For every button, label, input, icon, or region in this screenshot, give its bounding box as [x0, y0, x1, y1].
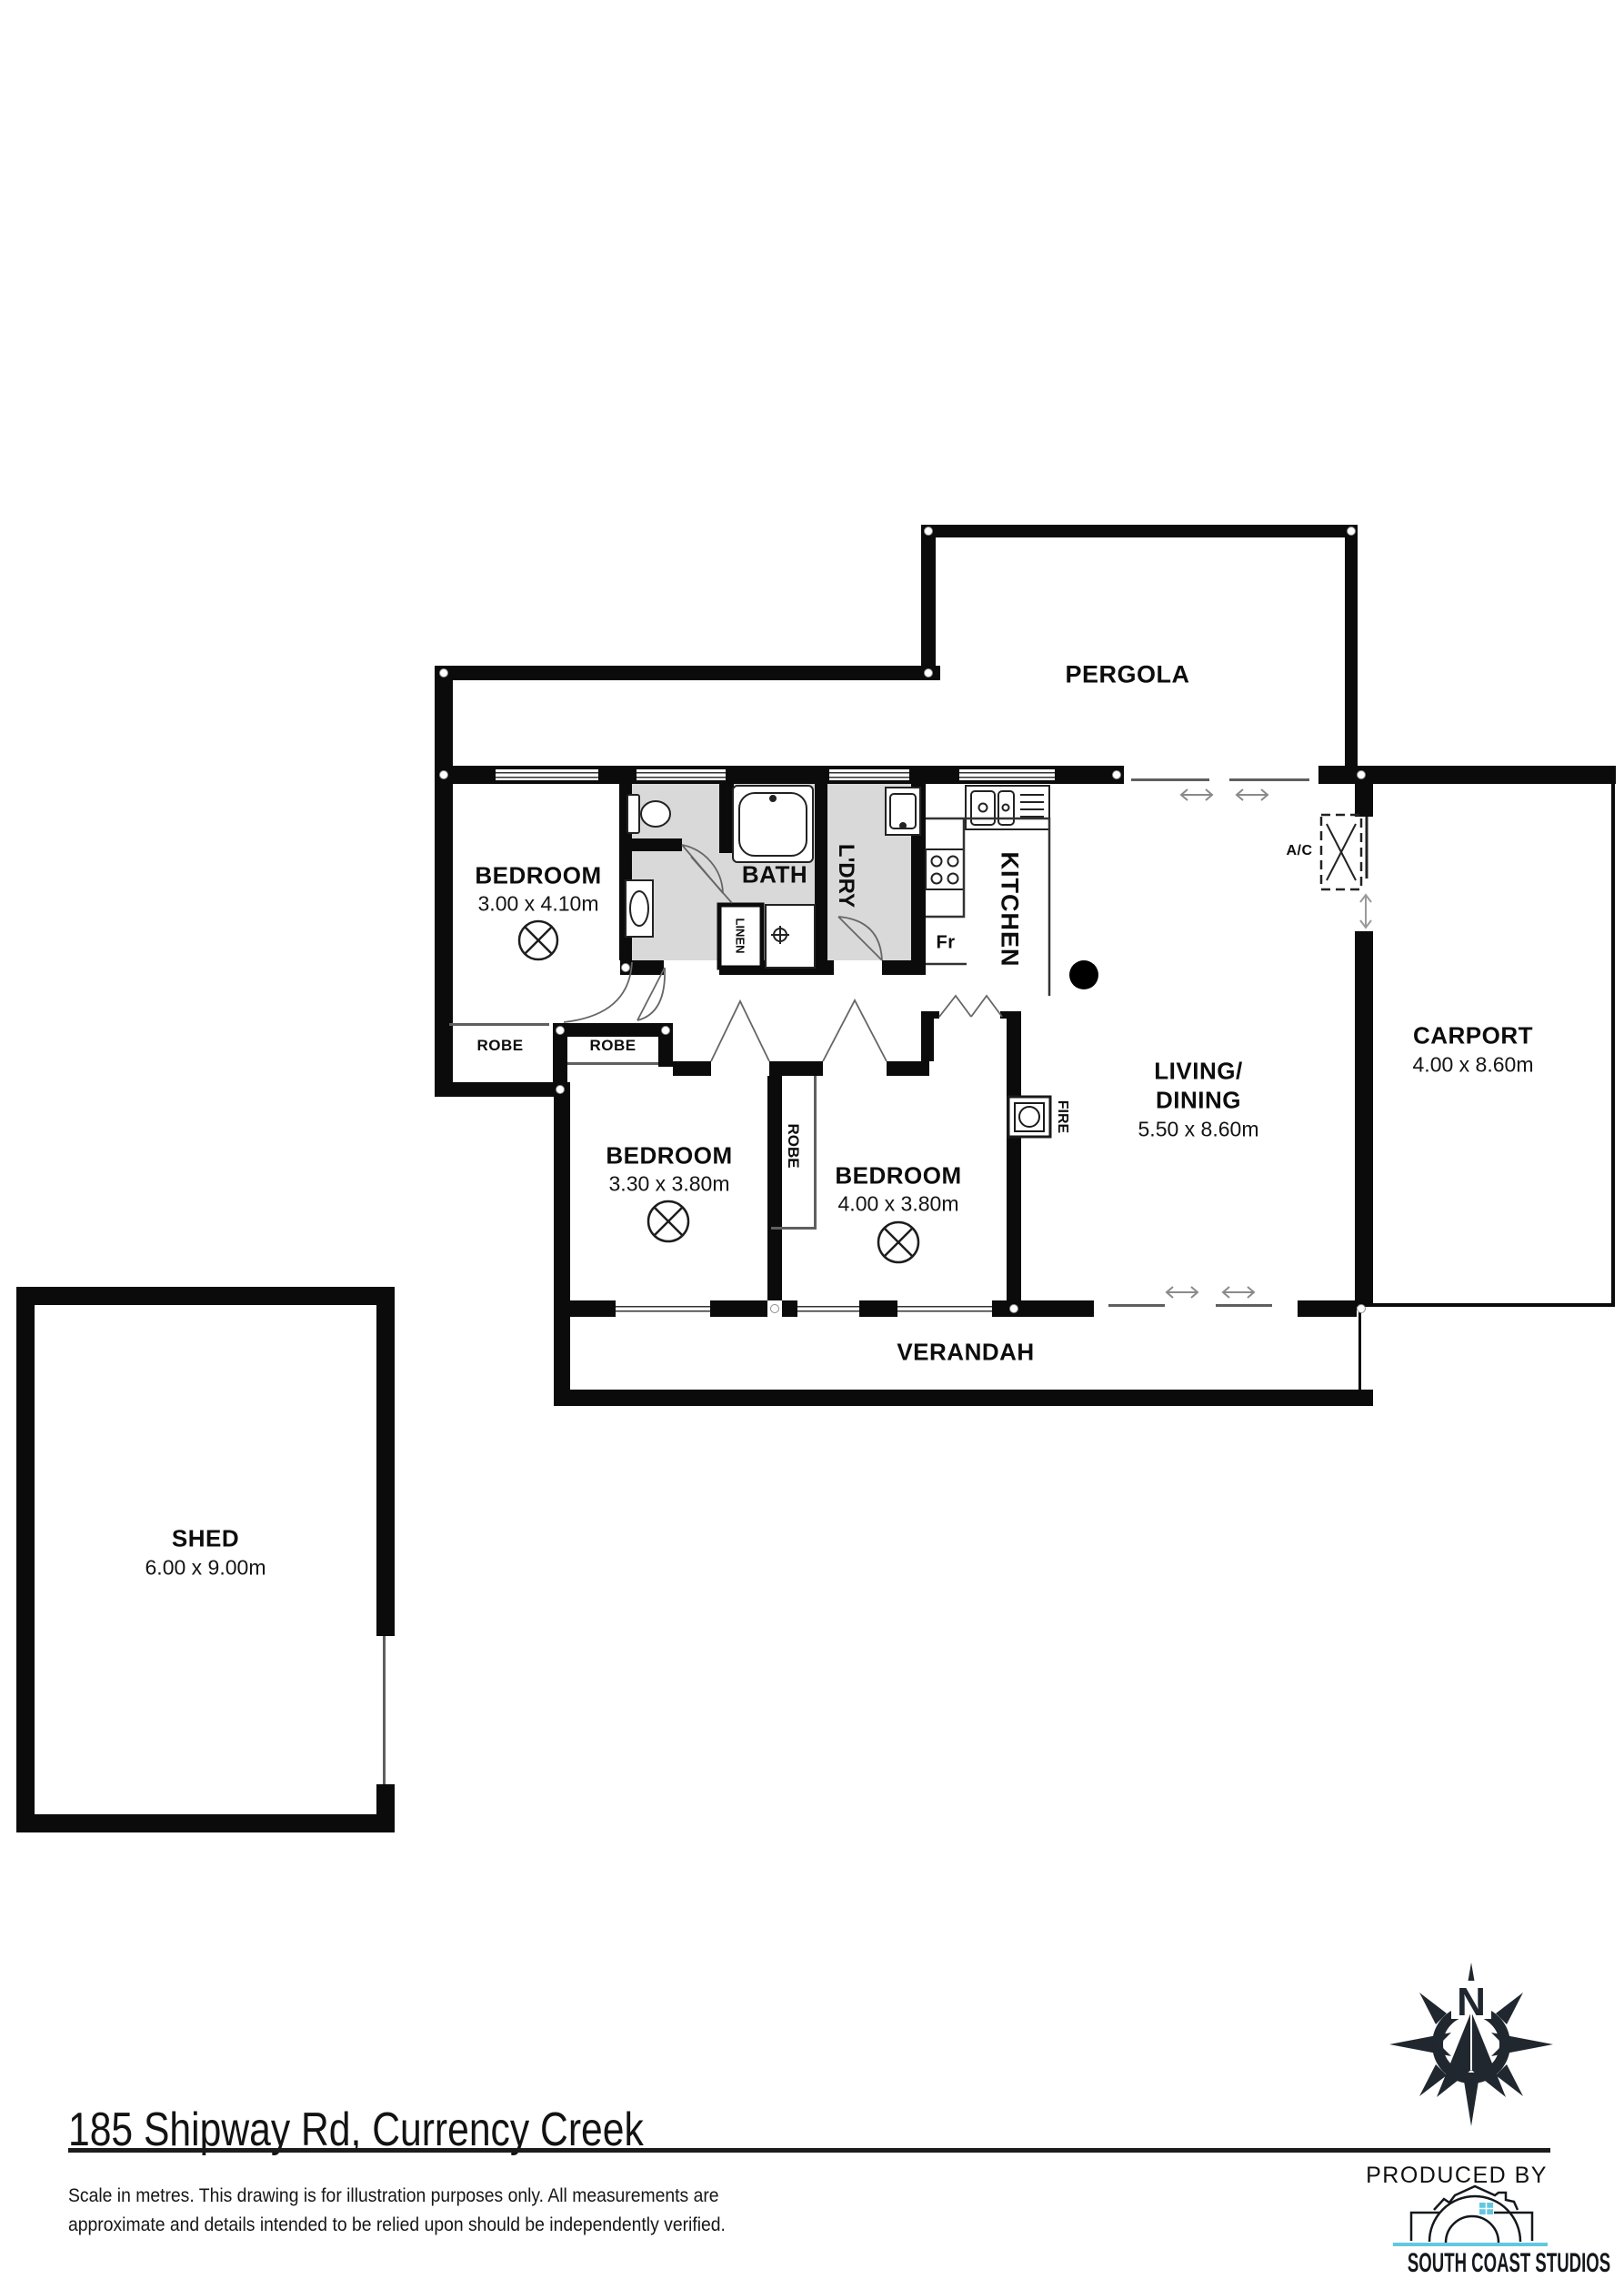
wall-node — [1357, 1304, 1366, 1313]
fixtures-layer — [0, 0, 1624, 2274]
vanity-basin-icon — [626, 880, 653, 937]
toilet-icon — [627, 795, 670, 833]
sliding-door-arrows-top — [1181, 789, 1268, 800]
wall-node — [924, 527, 933, 536]
room-label-linen: LINEN — [734, 919, 747, 954]
fireplace-icon — [1008, 1097, 1050, 1137]
room-dims-bedroom2: 3.30 x 3.80m — [609, 1172, 730, 1197]
room-label-robe2: ROBE — [589, 1037, 636, 1055]
room-label-living-1: LIVING/ — [1154, 1058, 1242, 1086]
ac-unit-icon — [1321, 815, 1367, 889]
hot-water-unit-icon — [1069, 960, 1098, 989]
room-label-living-2: DINING — [1156, 1087, 1241, 1115]
wall-node — [1112, 770, 1121, 779]
wall-node — [621, 963, 630, 972]
wall-node — [556, 1026, 565, 1035]
room-label-laundry: L'DRY — [833, 844, 858, 908]
room-label-kitchen: KITCHEN — [996, 852, 1024, 968]
room-dims-bedroom3: 4.00 x 3.80m — [838, 1192, 959, 1217]
wall-node — [770, 1304, 779, 1313]
room-label-bedroom2: BEDROOM — [606, 1142, 732, 1170]
studio-logo-icon — [1371, 2179, 1562, 2250]
room-label-bedroom3: BEDROOM — [835, 1162, 961, 1190]
window — [637, 769, 726, 780]
disclaimer-line1: Scale in metres. This drawing is for ill… — [68, 2184, 719, 2207]
floor-plan: PERGOLA BEDROOM 3.00 x 4.10m BATH L'DRY … — [0, 0, 1624, 2274]
wall-node — [924, 668, 933, 678]
fire-label: FIRE — [1054, 1100, 1070, 1133]
wall-node — [661, 1026, 670, 1035]
room-label-robe3: ROBE — [784, 1123, 802, 1168]
wall-node — [1347, 527, 1356, 536]
fridge-label: Fr — [937, 933, 956, 954]
north-compass-icon: N — [1380, 1957, 1562, 2132]
room-label-carport: CARPORT — [1413, 1022, 1533, 1050]
window — [797, 1303, 859, 1314]
divider-line — [68, 2148, 1550, 2153]
disclaimer-line2: approximate and details intended to be r… — [68, 2214, 726, 2236]
room-dims-bedroom1: 3.00 x 4.10m — [478, 892, 599, 917]
shower-icon — [766, 905, 815, 968]
ceiling-light-icon — [878, 1222, 918, 1262]
window — [829, 769, 909, 780]
room-dims-shed: 6.00 x 9.00m — [145, 1556, 266, 1581]
room-label-bath: BATH — [742, 861, 807, 889]
wall-node — [439, 770, 448, 779]
wall-node — [556, 1085, 565, 1094]
room-dims-living: 5.50 x 8.60m — [1138, 1118, 1259, 1142]
room-dims-carport: 4.00 x 8.60m — [1413, 1053, 1534, 1078]
bathtub-icon — [733, 786, 813, 862]
ceiling-light-icon — [519, 921, 557, 959]
wall-node — [439, 668, 448, 678]
window — [897, 1303, 992, 1314]
room-label-verandah: VERANDAH — [897, 1339, 1034, 1367]
studio-name: SOUTH COAST STUDIOS — [1408, 2248, 1526, 2279]
window — [616, 1303, 710, 1314]
room-label-pergola: PERGOLA — [1065, 661, 1189, 689]
ac-label: A/C — [1286, 843, 1312, 859]
room-label-bedroom1: BEDROOM — [475, 862, 601, 890]
window — [959, 769, 1055, 780]
room-label-shed: SHED — [172, 1525, 239, 1553]
kitchen-sink-icon — [966, 786, 1049, 829]
sliding-door-arrows-verandah — [1167, 1287, 1254, 1298]
stove-icon — [926, 849, 964, 889]
ceiling-light-icon — [648, 1201, 688, 1241]
room-label-robe1: ROBE — [476, 1037, 523, 1055]
laundry-trough-icon — [886, 788, 920, 835]
wall-node — [1357, 770, 1366, 779]
wall-node — [1009, 1304, 1018, 1313]
kitchen-bench — [926, 818, 1049, 996]
window — [496, 769, 598, 780]
ac-door-arrow — [1360, 895, 1371, 928]
